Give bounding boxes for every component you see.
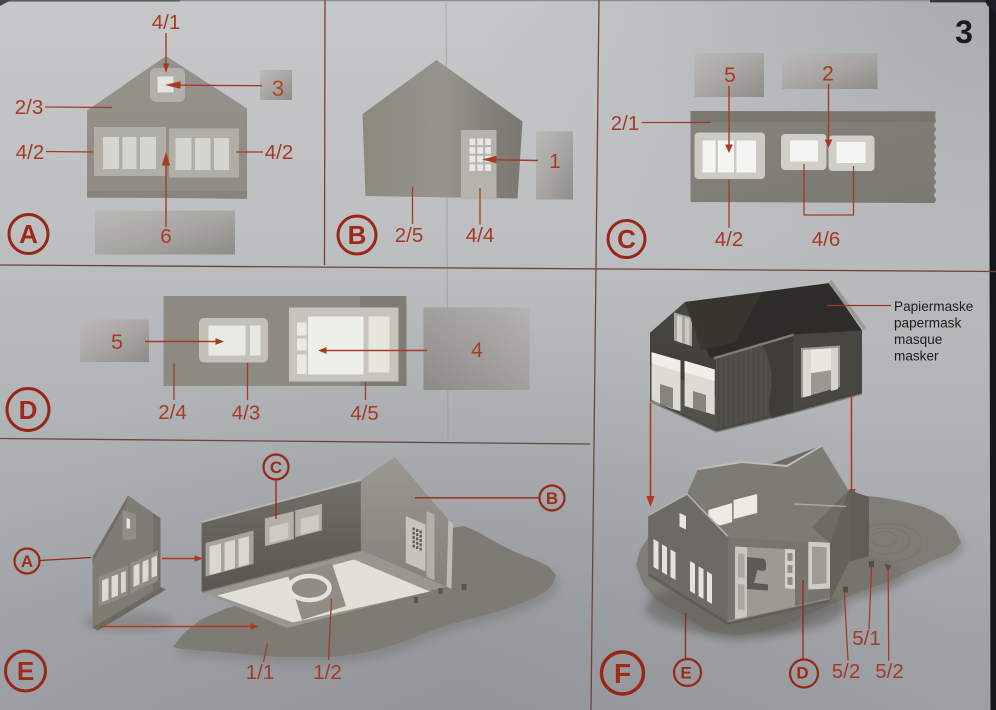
svg-text:masque: masque <box>894 332 942 347</box>
svg-text:papermask: papermask <box>894 316 961 331</box>
svg-text:5: 5 <box>111 330 123 354</box>
svg-text:5: 5 <box>724 64 736 87</box>
svg-text:4/4: 4/4 <box>466 224 495 247</box>
svg-text:4: 4 <box>471 339 483 362</box>
svg-text:B: B <box>348 220 367 250</box>
svg-text:A: A <box>19 219 38 249</box>
svg-text:6: 6 <box>160 225 171 248</box>
svg-text:D: D <box>19 395 38 425</box>
svg-text:Papiermaske: Papiermaske <box>894 299 973 314</box>
svg-text:1/2: 1/2 <box>313 661 342 684</box>
svg-text:2/4: 2/4 <box>158 401 187 424</box>
svg-text:5/2: 5/2 <box>875 660 904 683</box>
svg-text:2/5: 2/5 <box>395 224 424 247</box>
svg-text:2/1: 2/1 <box>611 112 640 135</box>
svg-text:2/3: 2/3 <box>15 96 44 119</box>
svg-text:F: F <box>614 658 631 689</box>
svg-text:E: E <box>17 656 34 686</box>
svg-text:4/3: 4/3 <box>232 402 261 425</box>
svg-text:3: 3 <box>272 76 284 101</box>
svg-text:A: A <box>21 552 33 571</box>
svg-text:1/1: 1/1 <box>246 661 275 684</box>
svg-text:C: C <box>617 224 636 254</box>
svg-text:4/2: 4/2 <box>715 228 744 251</box>
svg-text:E: E <box>680 664 691 683</box>
svg-text:3: 3 <box>955 14 973 50</box>
svg-text:5/1: 5/1 <box>852 627 881 650</box>
svg-text:C: C <box>270 458 282 477</box>
svg-text:4/2: 4/2 <box>265 141 294 164</box>
svg-text:4/2: 4/2 <box>16 141 45 164</box>
svg-text:masker: masker <box>894 349 939 364</box>
svg-text:2: 2 <box>822 63 834 86</box>
svg-text:B: B <box>546 489 558 508</box>
svg-text:1: 1 <box>549 150 560 173</box>
svg-text:D: D <box>796 664 808 683</box>
svg-text:4/1: 4/1 <box>152 11 181 34</box>
svg-text:5/2: 5/2 <box>832 660 861 683</box>
svg-text:4/6: 4/6 <box>812 228 841 251</box>
svg-text:4/5: 4/5 <box>350 402 379 425</box>
